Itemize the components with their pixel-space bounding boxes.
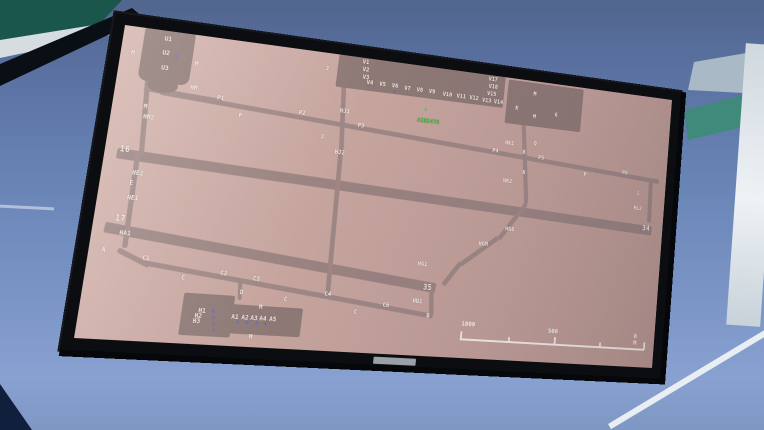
runway-label: 17: [115, 214, 127, 223]
scale-tick: [643, 342, 645, 349]
taxiway-label: J: [325, 66, 329, 72]
aircraft-icon: ✈: [210, 327, 218, 332]
taxiway-label: C1: [142, 256, 151, 263]
taxiway-label: P3: [357, 123, 364, 129]
taxiway-label: C: [353, 310, 357, 316]
taxiway-label: C4: [324, 292, 332, 299]
taxiway-label: V14: [494, 99, 504, 106]
taxiway-label: U3: [161, 65, 169, 72]
taxiway-label: A5: [269, 317, 277, 324]
taxiway-label: HG6: [505, 227, 515, 233]
aircraft-callsign-label: AIB2478: [399, 115, 456, 128]
taxiway-label: V10: [442, 92, 452, 99]
taxiway-label: P: [583, 172, 586, 178]
taxiway-label: HE2: [131, 170, 143, 177]
taxiway-label: P2: [298, 110, 306, 117]
taxiway-label: HG1: [417, 262, 427, 269]
taxiway-label: NE1: [126, 195, 138, 202]
taxiway-label: B: [426, 313, 430, 319]
scale-label-0m: 0 M: [633, 333, 637, 345]
taxiway-label: M: [143, 104, 148, 110]
runway-16-34: [116, 148, 652, 236]
taxiway-label: P4: [492, 148, 499, 154]
taxiway-label: V12: [469, 95, 479, 102]
taxiway-label: HA1: [119, 230, 131, 237]
runway-label: 35: [423, 284, 433, 292]
taxiway-label: M: [131, 50, 136, 56]
taxiway-label: G: [554, 113, 557, 119]
runway-17-35: [103, 222, 436, 293]
taxiway-label: HB1: [412, 299, 422, 306]
taxiway-label: K: [522, 150, 526, 156]
taxiway-label: C6: [382, 303, 389, 309]
taxiway-label: HM: [190, 85, 198, 92]
taxiway-label: HM2: [142, 114, 154, 121]
taxiway-label: P5: [538, 155, 544, 161]
taxiway-label: V4: [366, 80, 373, 86]
aircraft-icon: ✈: [210, 308, 218, 313]
taxiway-label: U1: [164, 37, 172, 44]
scene: U1U2U3MMHMP1PMHM216HE2ENE117HA1AC1CC2C3D…: [0, 0, 764, 430]
aircraft-icon: ✈: [210, 321, 218, 326]
taxiway-label: V11: [456, 94, 466, 101]
taxiway-label: U2: [162, 50, 170, 57]
taxiway-label: C: [181, 275, 186, 282]
aircraft-icon: ✈: [423, 106, 430, 114]
taxiway-label: M: [248, 334, 252, 340]
aircraft-icon: ✈: [210, 315, 218, 320]
taxiway-label: H3: [192, 319, 200, 326]
taxiway-label: P: [238, 113, 242, 119]
taxiway-label: M: [533, 92, 536, 98]
taxiway-label: V2: [362, 67, 369, 73]
taxiway-label: M: [533, 115, 537, 121]
taxiway-label: V7: [404, 86, 411, 92]
taxiway-label: P6: [622, 170, 628, 176]
taxiway-label: V8: [416, 88, 423, 94]
taxiway-label: HK1: [505, 141, 515, 148]
taxiway-label: HJ1: [339, 108, 350, 115]
taxiway-label: D: [239, 290, 243, 296]
taxiway-label: C2: [220, 271, 228, 278]
taxiway-label: A: [101, 247, 106, 254]
taxiway-label: V15: [487, 91, 497, 98]
taxiway-label: C3: [252, 276, 260, 283]
taxiway-label: E: [129, 181, 134, 188]
taxiway-label: Q: [533, 141, 537, 147]
taxiway-label: V5: [379, 82, 386, 88]
taxiway-label: HL2: [633, 206, 642, 212]
taxiway-label: M: [258, 305, 262, 311]
runway-label: 34: [642, 225, 650, 232]
scale-bar-line: [460, 338, 644, 350]
taxiway-k: [522, 121, 529, 204]
taxiway-label: M: [194, 62, 199, 68]
taxiway-label: K: [522, 170, 526, 176]
taxiway-label: HJ2: [334, 150, 345, 157]
taxiway-label: C: [283, 297, 287, 303]
taxiway-label: L: [637, 191, 640, 197]
taxiway-label: HK2: [503, 178, 513, 185]
taxiway-l-link: [647, 180, 653, 223]
scale-label-1000: 1000: [461, 321, 475, 328]
taxiway-label: HGM: [478, 241, 488, 247]
taxiway-label: V13: [482, 98, 492, 105]
taxiway-label: V1: [362, 60, 369, 66]
taxiway-label: V9: [429, 89, 436, 95]
runway-label: 16: [119, 145, 131, 154]
taxiway-g-3: [441, 261, 462, 287]
taxiway-label: J: [320, 134, 324, 140]
taxiway-label: K: [515, 106, 519, 112]
scale-label-500: 500: [548, 328, 558, 335]
taxiway-label: P1: [217, 96, 225, 103]
